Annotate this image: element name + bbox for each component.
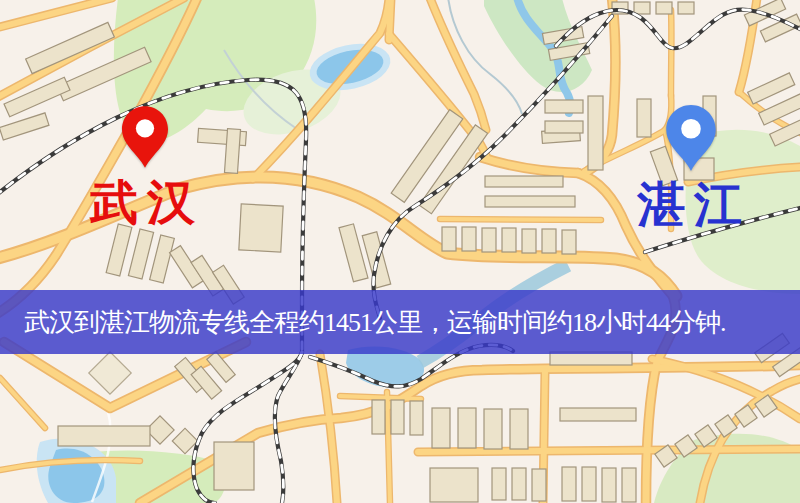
wuhan-pin-icon[interactable] [121,105,169,169]
info-banner: 武汉到湛江物流专线全程约1451公里，运输时间约18小时44分钟. [0,290,800,354]
wuhan-pin-hole [136,119,154,137]
route-summary-text: 武汉到湛江物流专线全程约1451公里，运输时间约18小时44分钟. [0,305,726,340]
zhanjiang-pin-icon[interactable] [664,104,718,172]
zhanjiang-pin-hole [681,119,701,139]
map-image[interactable]: 武汉 湛江 武汉到湛江物流专线全程约1451公里，运输时间约18小时44分钟. [0,0,800,503]
wuhan-city-label: 武汉 [90,179,204,227]
zhanjiang-city-label: 湛江 [637,181,751,229]
map-canvas[interactable] [0,0,800,503]
